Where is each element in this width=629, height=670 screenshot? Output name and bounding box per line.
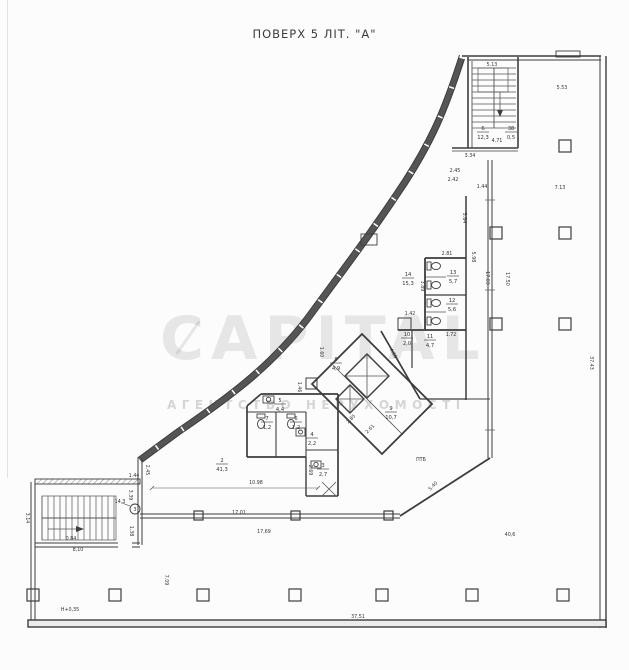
dimension-label: 5.53 [557, 85, 568, 91]
dimension-label: 7.13 [555, 185, 566, 191]
dimension-label: 2.42 [448, 177, 459, 183]
dimension-label: 1.44 [477, 184, 488, 190]
dimension-label: 0.84 [66, 536, 77, 542]
dimension-label: 2.85 [345, 413, 357, 425]
room-area: 0,5 [507, 135, 515, 141]
dimension-label: 2.45 [450, 168, 461, 174]
dimension-label: 1.60 [318, 347, 324, 358]
dimension-label: 2.45 [144, 465, 150, 476]
dimension-label: 5.64 [461, 213, 467, 224]
dimension-label: 37,51 [351, 614, 365, 620]
room-number: 14 [405, 272, 412, 278]
room-area: 5,6 [448, 307, 456, 313]
dimension-label: 2.61 [364, 423, 376, 435]
dimension-label: 17.01 [232, 510, 246, 516]
room-area: 10,7 [385, 415, 397, 421]
door-cross-marker [322, 482, 336, 496]
dimension-label: 40,6 [505, 532, 516, 538]
toilet-icon [427, 262, 441, 270]
room-number: 8 [334, 357, 337, 363]
staircase-bottom-left [35, 479, 140, 547]
dimension-label: 3.39 [127, 490, 133, 501]
dimension-label: 1.42 [405, 311, 416, 317]
dimension-label: 3.34 [465, 153, 476, 159]
room-number: 6 [294, 416, 297, 422]
room-area: 15,3 [402, 281, 414, 287]
room-area: 1,2 [263, 425, 271, 431]
room-number: 5 [278, 398, 281, 404]
room-number: 12 [449, 298, 456, 304]
outer-walls [28, 51, 606, 628]
room-number: 4 [310, 432, 314, 438]
toilet-icon [427, 299, 441, 307]
columns [27, 140, 571, 601]
room-number: 11 [427, 334, 434, 340]
curved-facade-wall [138, 55, 465, 462]
dimension-label: 37.43 [588, 356, 594, 370]
room-number: 10 [404, 332, 411, 338]
dimension-label: 5.40 [427, 480, 439, 492]
dimension-label: 5.98 [470, 252, 476, 263]
room-area: 4,4 [276, 407, 285, 413]
dimension-label: Н+0,35 [61, 607, 79, 613]
room-area: 1,2 [292, 425, 300, 431]
dimension-label: 8,10 [73, 547, 84, 553]
dimension-line [150, 486, 320, 490]
dimension-label: 1.72 [446, 332, 457, 338]
room-number: 13 [450, 270, 457, 276]
room-area: 2,7 [319, 472, 327, 478]
dimension-label: 3.89 [419, 281, 425, 292]
dimension-label: 3.14 [24, 513, 30, 524]
room-area: 4,7 [426, 343, 434, 349]
room-number: 7 [265, 416, 268, 422]
dimension-label: 17.50 [504, 272, 510, 286]
dimension-label: 1.38 [128, 526, 134, 537]
room-area: 2,0 [403, 341, 411, 347]
room-number: 3 [321, 463, 324, 469]
dimension-labels: 5.135.537.134.713.342.452.421.445.642.81… [24, 62, 594, 620]
dimension-label: ПТБ [416, 457, 426, 463]
toilet-icon [427, 317, 441, 325]
dimension-label: 2.69 [307, 465, 313, 476]
floor-plan-drawing: 3 [0, 0, 629, 670]
entry-marker-number: 3 [133, 507, 136, 513]
toilet-icon [427, 281, 441, 289]
dimension-label: 1.46 [296, 382, 302, 393]
room-number: 9 [389, 406, 392, 412]
room-number: 6 [481, 126, 484, 132]
room-area: 5,7 [449, 279, 457, 285]
dimension-label: 10.98 [249, 480, 263, 486]
room-area: 2,2 [308, 441, 316, 447]
room-labels: 612,3380,5135,7125,61415,3102,0114,784,9… [216, 126, 517, 478]
dimension-label: 2.81 [442, 251, 453, 257]
dimension-label: 4.71 [492, 138, 503, 144]
room-number: 2 [220, 458, 223, 464]
dimension-label: 1.44 [129, 473, 140, 479]
sanitary-fixtures [257, 262, 441, 468]
stair-direction-arrow [76, 526, 84, 532]
dimension-label: 17,69 [257, 529, 271, 535]
interior-walls [138, 160, 495, 545]
scanned-floor-plan-page: CAPITAL АГЕНТСТВО НЕРУХОМОСТІ МАСШТАБ 1:… [0, 0, 629, 670]
room-area: 4,9 [332, 366, 340, 372]
room-area: 12,3 [477, 135, 489, 141]
room-area: 41,3 [216, 467, 228, 473]
dimension-label: 7.09 [163, 575, 169, 586]
sink-icon [263, 396, 274, 403]
room-number: 38 [508, 126, 515, 132]
dimension-label: 5.13 [487, 62, 498, 68]
dimension-label: 14,3 [115, 499, 126, 505]
dimension-label: 17.03 [484, 271, 490, 285]
